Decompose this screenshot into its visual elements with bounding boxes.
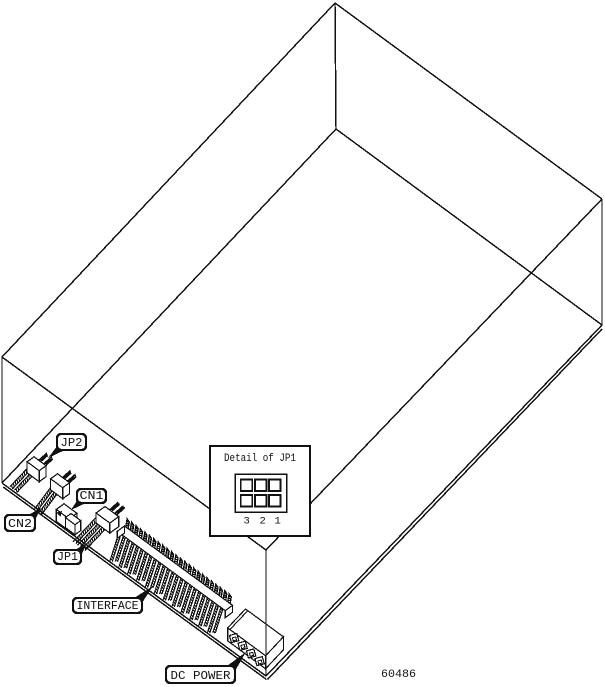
svg-text:1: 1 <box>275 516 281 528</box>
svg-text:CN1: CN1 <box>80 490 104 503</box>
svg-text:DC POWER: DC POWER <box>171 670 231 683</box>
svg-text:3: 3 <box>244 516 250 528</box>
svg-text:JP1: JP1 <box>57 551 78 564</box>
svg-text:60486: 60486 <box>381 669 416 681</box>
svg-text:CN2: CN2 <box>8 518 32 531</box>
svg-text:INTERFACE: INTERFACE <box>77 600 139 613</box>
svg-text:Detail of JP1: Detail of JP1 <box>224 453 296 465</box>
svg-text:JP2: JP2 <box>61 437 83 450</box>
svg-text:2: 2 <box>260 516 266 528</box>
